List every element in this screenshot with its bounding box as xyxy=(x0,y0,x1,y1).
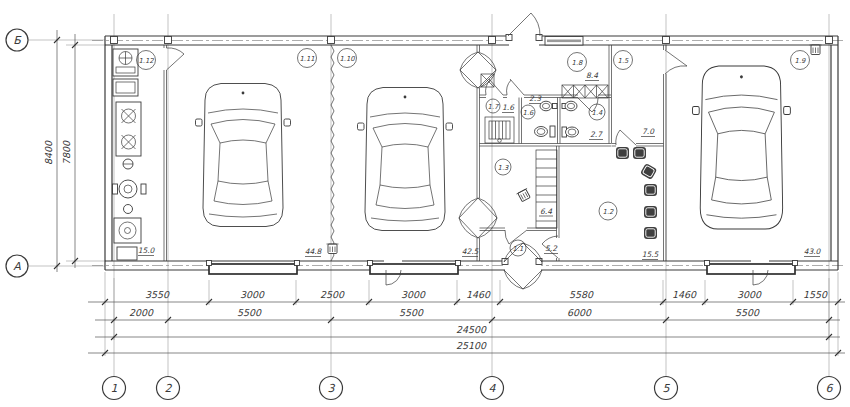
bin-icon xyxy=(810,45,822,55)
dim-value: 3000 xyxy=(240,289,265,300)
door-garage-vestibule xyxy=(459,198,497,238)
zigzag-break-line xyxy=(331,45,334,261)
room-area: 15.5 xyxy=(642,250,660,259)
chair-icon xyxy=(644,227,657,239)
column-marks xyxy=(111,37,833,44)
door-garage-corridor xyxy=(460,52,496,88)
room-number: 1.9 xyxy=(795,57,806,65)
room-number: 1.2 xyxy=(603,208,614,216)
dim-value: 1550 xyxy=(803,289,828,300)
top-entrance-opening xyxy=(509,34,539,47)
dim-value: 2500 xyxy=(320,289,345,300)
chair-icon xyxy=(616,147,629,159)
floor-plan-drawing: 3550 3000 2500 3000 1460 5580 1460 3000 … xyxy=(0,0,850,407)
room-number: 1.12 xyxy=(138,57,154,65)
dim-value: 7800 xyxy=(61,140,72,165)
dim-subtotal: 24500 xyxy=(456,324,487,335)
room-number: 1.7 xyxy=(488,103,499,111)
dim-value: 1460 xyxy=(672,289,697,300)
door-top-entrance xyxy=(508,13,540,36)
axis-label: 6 xyxy=(826,382,834,395)
room-number: 1.10 xyxy=(339,55,355,63)
dim-value: 6000 xyxy=(567,307,592,318)
axis-label: 1 xyxy=(111,382,118,395)
chair-icon xyxy=(640,163,657,180)
room-number: 1.1 xyxy=(513,245,524,253)
room-number: 1.4 xyxy=(592,109,603,117)
sink-icon xyxy=(562,101,577,111)
dim-value: 1460 xyxy=(466,289,491,300)
door-1-2-to-1-5 xyxy=(616,130,636,145)
door-boiler-room xyxy=(167,48,185,70)
bin-icon xyxy=(327,244,339,254)
room-area: 2.3 xyxy=(529,94,542,103)
room-area: 44.8 xyxy=(305,247,323,256)
dim-value: 2000 xyxy=(129,307,154,318)
room-area: 6.4 xyxy=(540,207,552,216)
car-icon xyxy=(358,88,453,231)
dimension-row-axes: 2000 5500 5500 6000 5500 xyxy=(95,307,840,323)
door-1-5-to-1-9 xyxy=(665,50,687,74)
dimension-row-detail: 3550 3000 2500 3000 1460 5580 1460 3000 … xyxy=(88,289,845,305)
dim-value: 5500 xyxy=(399,307,424,318)
car-icon xyxy=(693,66,791,229)
chairs xyxy=(616,147,657,239)
toilet-icon xyxy=(535,126,556,137)
room-number: 1.8 xyxy=(572,59,583,67)
gate-bay-1-9 xyxy=(707,264,795,274)
sink-icon xyxy=(540,101,557,111)
boiler-equipment xyxy=(113,49,147,260)
axis-label: 4 xyxy=(489,382,497,395)
chair-icon xyxy=(644,184,657,196)
dimension-left-vertical: 8400 7800 xyxy=(43,30,78,272)
door-wc-1-6 xyxy=(507,79,524,95)
dim-value: 3550 xyxy=(145,289,170,300)
chair-icon xyxy=(633,147,646,159)
room-area: 2.7 xyxy=(590,130,603,139)
dim-value: 3000 xyxy=(737,289,762,300)
chair-icon xyxy=(644,206,657,218)
room-area: 43.0 xyxy=(804,247,822,256)
dim-value: 8400 xyxy=(43,140,54,165)
axis-label: 2 xyxy=(165,382,173,395)
floor-plan-page: 3550 3000 2500 3000 1460 5580 1460 3000 … xyxy=(0,0,850,407)
car-icon xyxy=(196,84,291,227)
room-area: 15.0 xyxy=(138,246,156,255)
room-number: 1.6 xyxy=(523,109,534,117)
dimension-row-total: 25100 xyxy=(88,340,845,356)
gate-bay-1-11 xyxy=(209,264,297,274)
room-number: 1.11 xyxy=(299,55,314,63)
window xyxy=(545,37,583,46)
axis-label: 5 xyxy=(663,382,671,395)
dim-value: 5580 xyxy=(569,289,594,300)
dim-total: 25100 xyxy=(456,340,487,351)
gate-bay-1-10 xyxy=(370,264,458,274)
bin-icon xyxy=(516,188,531,202)
cars xyxy=(196,66,791,231)
axis-label: Б xyxy=(13,34,22,47)
room-area: 5.2 xyxy=(545,244,558,253)
dim-value: 5500 xyxy=(735,307,760,318)
room-number: 1.5 xyxy=(618,57,629,65)
toilet-icon xyxy=(562,127,579,137)
room-area: 42.5 xyxy=(462,247,480,256)
shower-grate xyxy=(485,117,514,143)
dim-value: 5500 xyxy=(237,307,262,318)
dimension-row-subtotal: 24500 xyxy=(95,324,840,340)
room-number: 1.3 xyxy=(498,164,509,172)
dim-value: 3000 xyxy=(401,289,426,300)
room-area: 8.4 xyxy=(586,71,598,80)
axis-label: А xyxy=(13,260,21,273)
room-area: 7.0 xyxy=(642,127,655,136)
axis-label: 3 xyxy=(328,382,336,395)
room-area: 1.6 xyxy=(502,103,515,112)
